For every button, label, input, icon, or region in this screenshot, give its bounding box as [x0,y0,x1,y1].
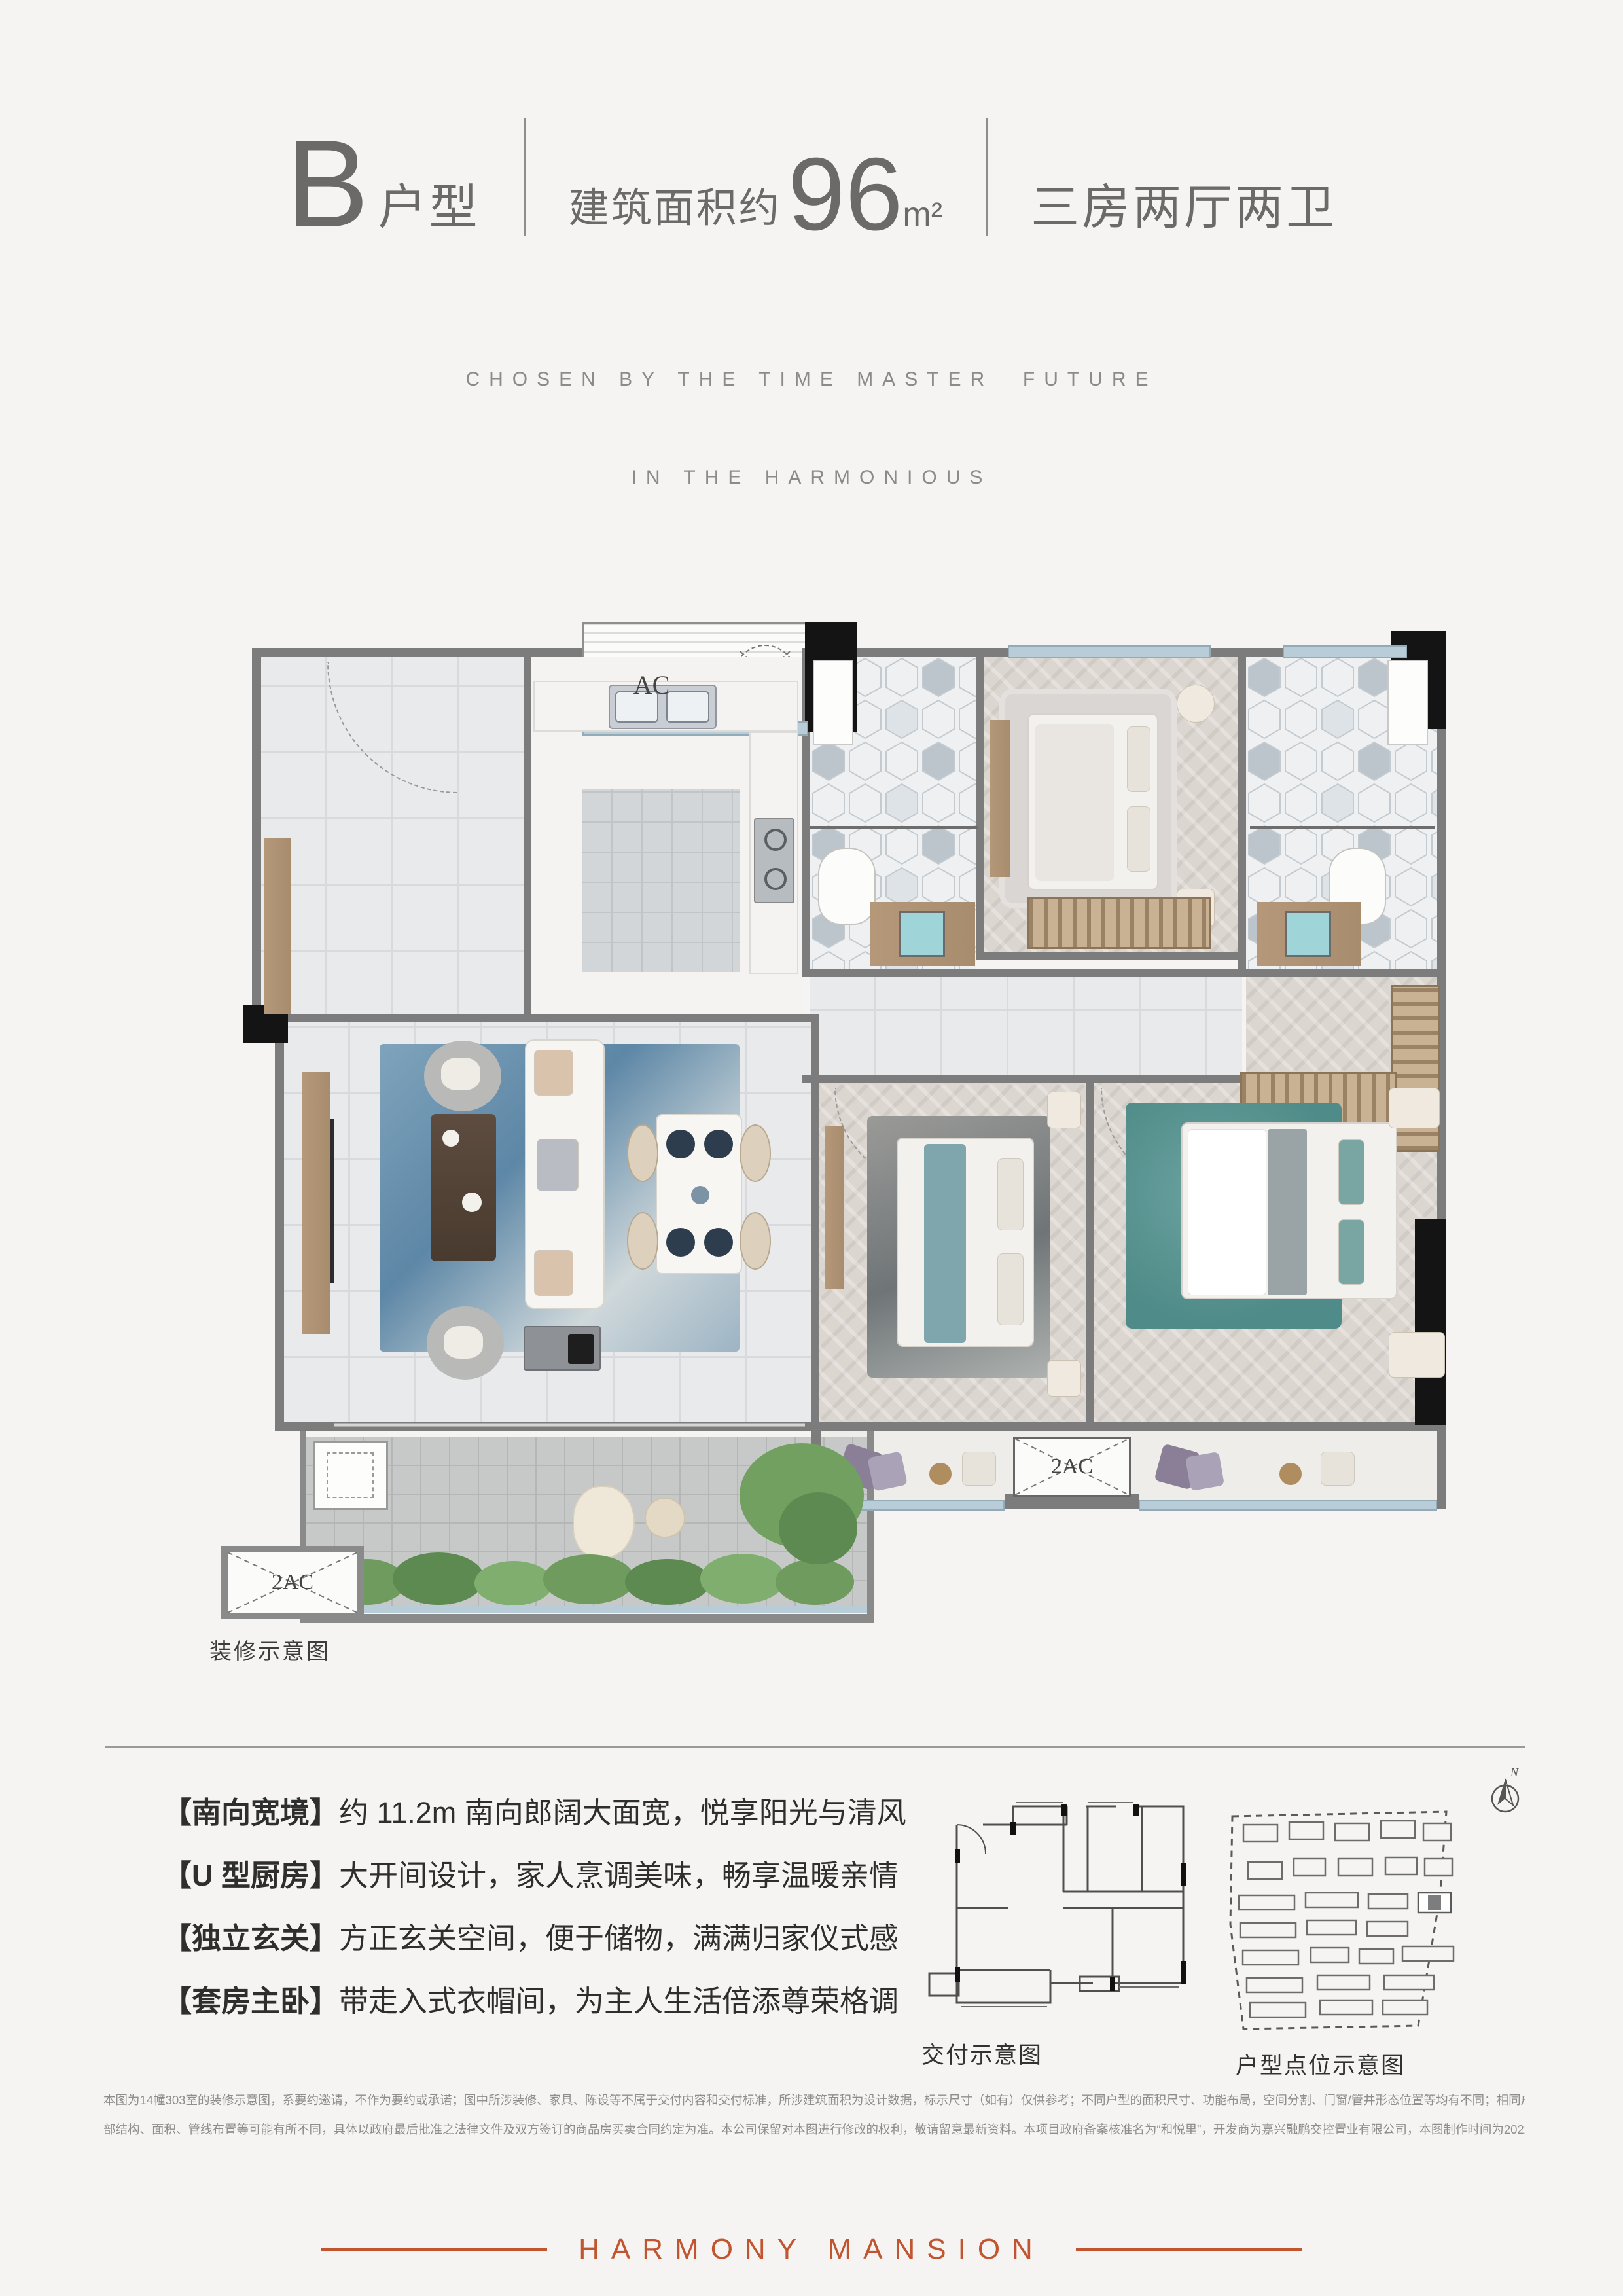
plants [776,1559,854,1605]
unit-letter: B [286,134,369,236]
subtitle-line1: CHOSEN BY THE TIME MASTER FUTURE [0,363,1623,396]
sliding-door [334,1423,805,1427]
bay-tray [1279,1463,1302,1485]
tv-cabinet [302,1072,330,1334]
nightstand [1047,1092,1081,1128]
wall [811,1422,1446,1431]
unit-suffix: 户型 [369,183,480,236]
rooms-text: 三房两厅两卫 [1031,183,1337,236]
title-separator [524,118,526,236]
feature-desc: 约 11.2m 南向郎阔大面宽，悦享阳光与清风 [339,1796,906,1829]
pillow [1127,726,1150,792]
footer-line-left [321,2248,547,2251]
sink-bowl [666,691,709,723]
feature-desc: 大开间设计，家人烹调美味，畅享温暖亲情 [339,1859,899,1892]
kitchen-island [582,789,740,972]
wall-baths-bottom [802,969,1446,977]
area-prefix: 建筑面积约 [569,188,781,236]
wall-living-right [811,1014,819,1431]
balcony-ac-box: 2AC [221,1546,364,1619]
place-setting [666,1130,695,1158]
plan-caption: 装修示意图 [209,1634,330,1666]
place-setting [666,1228,695,1257]
wall-bedroom-bath2 [1238,648,1246,977]
subtitle-line2: IN THE HARMONIOUS [0,461,1623,494]
balcony-rail-window [306,1606,867,1613]
dining-chair [627,1124,658,1182]
bedroom-north-bed [1027,713,1158,890]
site-plan-diagram [1214,1767,1476,2049]
disclaimer: 本图为14幢303室的装修示意图，系要约邀请，不作为要约或承诺；图中所涉装修、家… [103,2085,1525,2144]
sofa-pillow [534,1050,573,1096]
feature-tag: 【独立玄关】 [162,1922,339,1955]
wall-bath1-bedroom [976,648,984,960]
plants [393,1552,484,1605]
title-bar: B 户型 建筑面积约 96 m² 三房两厅两卫 [0,118,1623,236]
footer: HARMONY MANSION [0,2233,1623,2266]
coffee-table [431,1114,496,1261]
shoe-cabinet [264,838,291,1014]
wall-foyer-kitchen [524,648,531,1022]
dining-chair [740,1212,771,1270]
bay-pillow [962,1452,996,1486]
bay-pillow [1321,1452,1355,1486]
master-bench [1389,1088,1440,1128]
feature-item: 【独立玄关】方正玄关空间，便于储物，满满归家仪式感 [162,1920,906,1957]
bath2-basin [1285,911,1331,957]
footer-brand: HARMONY MANSION [579,2233,1044,2266]
master-bed [1181,1122,1397,1299]
sofa [525,1039,605,1309]
bay-ac-box: 2AC [1013,1437,1131,1497]
area-unit: m² [902,198,942,236]
tv-board [825,1126,844,1289]
pillow [997,1158,1024,1230]
duvet [1188,1129,1266,1295]
section-divider [105,1746,1525,1748]
place-setting [704,1228,733,1257]
feature-desc: 带走入式衣帽间，为主人生活倍添尊荣格调 [339,1984,899,2018]
wardrobe [1027,897,1211,949]
bath1-washstand [813,660,853,745]
bath2-shower-glass [1250,826,1435,829]
dining-chair [627,1212,658,1270]
subtitle: CHOSEN BY THE TIME MASTER FUTURE IN THE … [0,298,1623,527]
sideboard-tray [568,1334,594,1364]
wall-living-top [252,1014,811,1022]
sofa-pillow [534,1250,573,1296]
feature-tag: 【南向宽境】 [162,1796,339,1829]
washing-machine [313,1441,388,1510]
feature-list: 【南向宽境】约 11.2m 南向郎阔大面宽，悦享阳光与清风 【U 型厨房】大开间… [162,1795,906,2020]
master-bench [1389,1332,1445,1378]
pillow [997,1253,1024,1325]
column [1415,1219,1446,1425]
title-separator [986,118,988,236]
armchair-cushion [444,1326,483,1359]
wall-mid-master [1086,1083,1094,1431]
table-decor [462,1193,482,1212]
nightstand [1047,1360,1081,1397]
balcony-wall [300,1614,874,1623]
footer-line-right [1076,2248,1302,2251]
dining-chair [740,1124,771,1182]
area-value: 96 [781,153,903,236]
wall [275,1022,284,1431]
table-decor [442,1130,459,1147]
burner [764,868,787,890]
wall [252,648,582,657]
plants [543,1554,635,1604]
tree-cluster [779,1492,857,1564]
pouf [645,1498,685,1538]
feature-desc: 方正玄关空间，便于储物，满满归家仪式感 [339,1922,899,1955]
sofa-pillow [537,1139,579,1191]
hallway-floor [810,977,1242,1075]
bay-tray [929,1463,952,1485]
bedroom-north-window [1008,645,1211,658]
place-setting [704,1130,733,1158]
burner [764,829,787,851]
bay-pillow [1185,1452,1224,1491]
washer-door [327,1452,374,1498]
compass-n: N [1510,1766,1519,1779]
feature-item: 【南向宽境】约 11.2m 南向郎阔大面宽，悦享阳光与清风 [162,1795,906,1831]
disclaimer-line2: 部结构、面积、管线布置等可能有所不同，具体以政府最后批准之法律文件及双方签订的商… [103,2115,1525,2144]
feature-item: 【套房主卧】带走入式衣帽间，为主人生活倍添尊荣格调 [162,1983,906,2020]
duvet [1035,724,1114,881]
plants [625,1559,710,1605]
bath2-washstand [1387,660,1428,745]
delivery-plan-diagram [916,1787,1198,2029]
compass-icon: N [1480,1765,1533,1827]
plants [474,1561,553,1605]
highlighted-building [1428,1895,1441,1910]
bedroom-middle-bed [897,1138,1034,1347]
bath1-toilet [818,848,876,925]
bath2-vanity [1257,902,1361,966]
delivery-plan-caption: 交付示意图 [921,2037,1043,2070]
tv-screen [330,1119,334,1283]
site-plan-caption: 户型点位示意图 [1236,2047,1405,2081]
blanket [1268,1129,1307,1295]
disclaimer-line1: 本图为14幢303室的装修示意图，系要约邀请，不作为要约或承诺；图中所涉装修、家… [103,2085,1525,2115]
feature-tag: 【套房主卧】 [162,1984,339,2018]
ac-label: AC [633,670,670,700]
nightstand [1177,685,1215,723]
bath1-basin [899,911,945,957]
bay-window [1139,1500,1437,1511]
throw-blanket [924,1144,966,1343]
plants [700,1554,785,1604]
centerpiece [691,1186,709,1204]
tv-board [990,720,1010,877]
bay-pillow [867,1451,908,1492]
poster-page: { "header": { "unit_letter": "B", "unit_… [0,0,1623,2296]
floor-plan: AC [216,622,1446,1623]
wall [252,648,261,1022]
feature-tag: 【U 型厨房】 [162,1859,339,1892]
wall [1437,1431,1446,1509]
bay-ac-label: 2AC [1051,1454,1093,1479]
sideboard [524,1326,601,1371]
wall-bedroom-north-bottom [976,952,1246,960]
armchair [427,1306,504,1380]
cooktop [754,818,794,903]
pillow [1338,1139,1364,1205]
pillow [1127,806,1150,872]
bathroom2-window [1283,645,1407,658]
bath1-shower-glass [810,826,978,829]
pillow [1338,1219,1364,1285]
dining-table [656,1114,742,1274]
balcony-ac-label: 2AC [272,1570,313,1595]
armchair [424,1041,501,1111]
bath1-vanity [870,902,975,966]
armchair-cushion [441,1058,480,1090]
feature-item: 【U 型厨房】大开间设计，家人烹调美味，畅享温暖亲情 [162,1857,906,1894]
